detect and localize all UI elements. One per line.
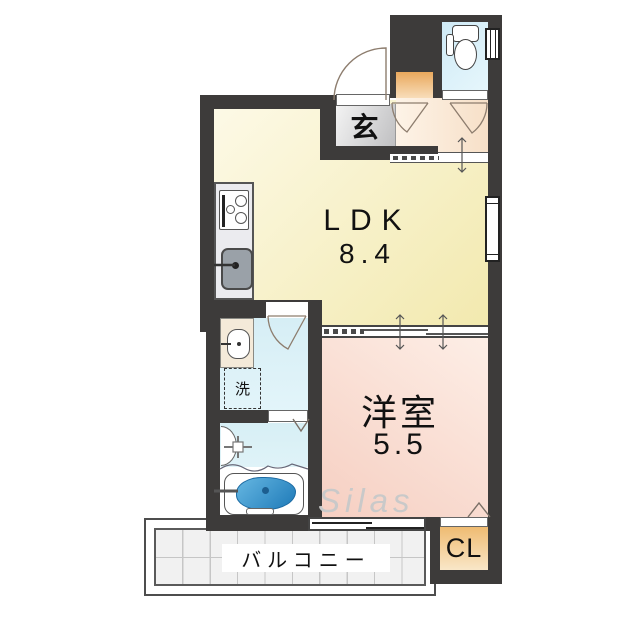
wall-left-ldk — [200, 95, 214, 332]
toilet-doorsill — [442, 90, 488, 100]
hall-slider-panel — [388, 146, 438, 154]
wall-washroom-bath — [206, 410, 268, 423]
entrance-label: 玄 — [350, 106, 378, 146]
entrance-doorsill — [336, 94, 390, 106]
toilet-icon — [444, 24, 484, 74]
watermark: Silas — [318, 482, 448, 520]
kitchen-sink-icon — [221, 248, 253, 290]
entrance-floor: 玄 — [334, 104, 396, 148]
hall-slider-rail — [393, 156, 439, 160]
washroom-door-opening — [266, 302, 308, 318]
partition-panel-left — [364, 329, 428, 331]
bathroom-door-opening — [268, 410, 308, 422]
shoe-cabinet — [396, 72, 433, 98]
floorplan: 玄 — [0, 0, 640, 640]
western-room-size: 5.5 — [330, 428, 470, 462]
bathtub-drain — [262, 487, 269, 494]
laundry-label: 洗 — [235, 378, 250, 399]
ldk-window — [485, 196, 500, 262]
closet-label: CL — [446, 533, 483, 564]
wall-right — [488, 95, 502, 584]
ldk-size: 8.4 — [300, 238, 435, 270]
washbasin-drain — [237, 342, 241, 346]
wall-closet-bottom — [430, 570, 502, 584]
hallway-floor — [396, 98, 488, 152]
western-room-label: 洋室 — [330, 390, 470, 430]
laundry-space: 洗 — [224, 368, 261, 409]
wall-entrance-bottom — [320, 146, 392, 160]
toilet-window — [485, 28, 500, 60]
toilet-bowl — [454, 39, 477, 70]
bathtub-grab-rail — [246, 508, 274, 515]
balcony-label-strip: バルコニー — [222, 544, 390, 572]
partition-closed-rail — [324, 329, 364, 334]
closet-floor: CL — [440, 527, 488, 570]
stove-icon — [219, 190, 249, 230]
partition-panel-right — [426, 333, 488, 335]
toilet-handle — [446, 34, 454, 56]
wall-bath-bottom — [206, 515, 320, 531]
ldk-label: LDK — [300, 204, 435, 238]
wall-top — [200, 95, 336, 109]
kitchen-faucet-knob — [232, 262, 239, 269]
balcony-label: バルコニー — [241, 544, 371, 573]
